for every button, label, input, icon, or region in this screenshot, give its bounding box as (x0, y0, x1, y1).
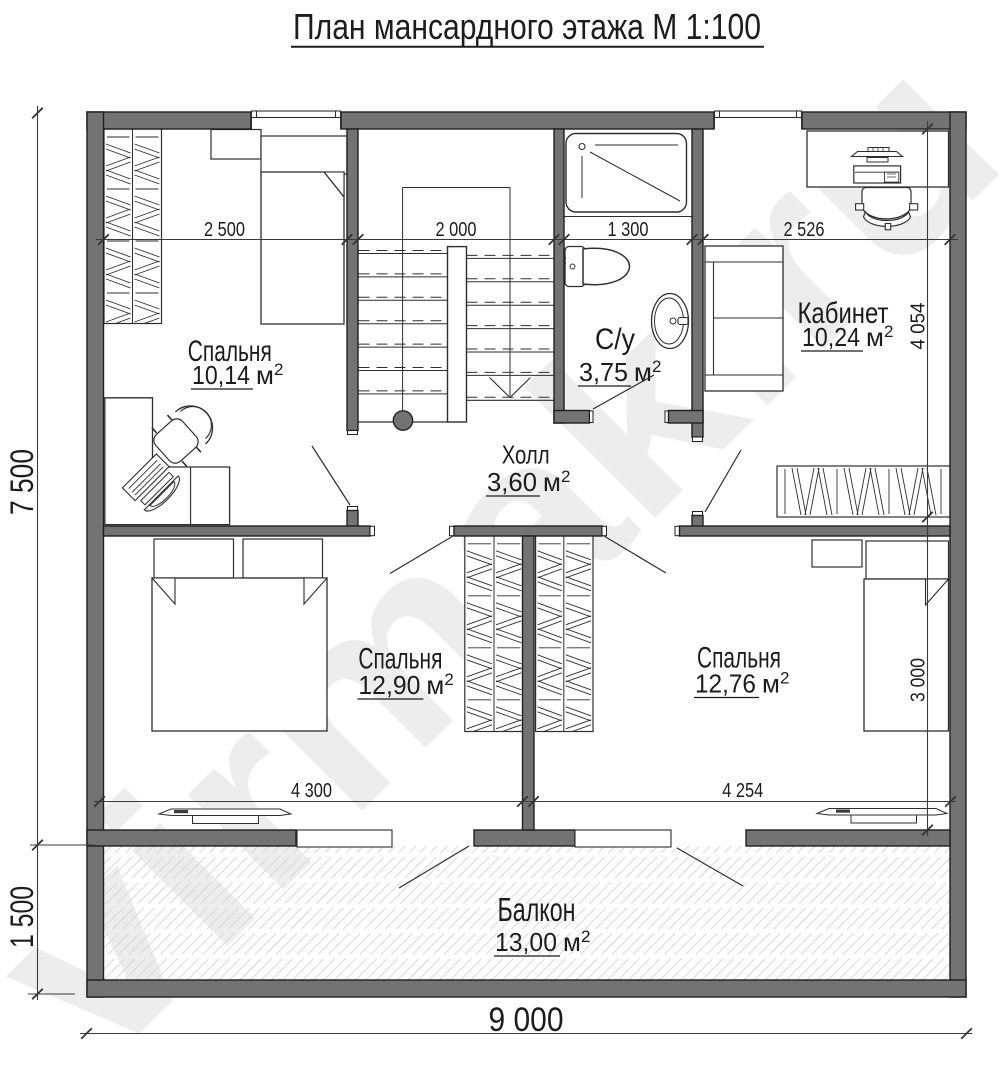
svg-text:м: м (563, 927, 581, 957)
svg-text:м: м (866, 322, 884, 352)
svg-text:План мансардного этажа М 1:100: План мансардного этажа М 1:100 (293, 6, 761, 47)
svg-text:3 000: 3 000 (908, 658, 930, 702)
svg-text:4 300: 4 300 (291, 780, 332, 802)
svg-text:3,60: 3,60 (487, 467, 537, 497)
svg-text:м: м (543, 467, 561, 497)
svg-text:2 500: 2 500 (204, 219, 245, 241)
svg-text:2 000: 2 000 (436, 219, 477, 241)
svg-text:10,14: 10,14 (192, 360, 250, 390)
svg-text:2: 2 (652, 357, 661, 376)
svg-text:м: м (426, 670, 444, 700)
svg-text:7 500: 7 500 (4, 449, 40, 515)
svg-text:13,00: 13,00 (495, 927, 557, 957)
svg-text:С/у: С/у (595, 323, 635, 356)
svg-text:9 000: 9 000 (489, 1001, 564, 1039)
svg-text:м: м (762, 669, 780, 699)
svg-text:1 300: 1 300 (608, 219, 649, 241)
svg-text:м: м (634, 357, 652, 387)
svg-text:2: 2 (274, 360, 283, 379)
svg-text:Балкон: Балкон (498, 891, 576, 928)
svg-text:4 054: 4 054 (908, 303, 930, 350)
svg-text:1 500: 1 500 (4, 886, 40, 948)
svg-text:2: 2 (581, 927, 590, 946)
svg-text:12,90: 12,90 (358, 670, 420, 700)
svg-text:3,75: 3,75 (579, 357, 628, 387)
svg-text:10,24: 10,24 (802, 322, 860, 352)
svg-text:2: 2 (884, 322, 893, 341)
svg-text:4 254: 4 254 (722, 780, 763, 802)
svg-text:2: 2 (561, 467, 570, 486)
svg-text:12,76: 12,76 (695, 669, 756, 699)
svg-text:м: м (256, 360, 274, 390)
svg-text:2: 2 (780, 669, 789, 688)
svg-text:Холл: Холл (502, 440, 550, 470)
svg-text:2 526: 2 526 (784, 219, 825, 241)
svg-text:2: 2 (444, 670, 453, 689)
